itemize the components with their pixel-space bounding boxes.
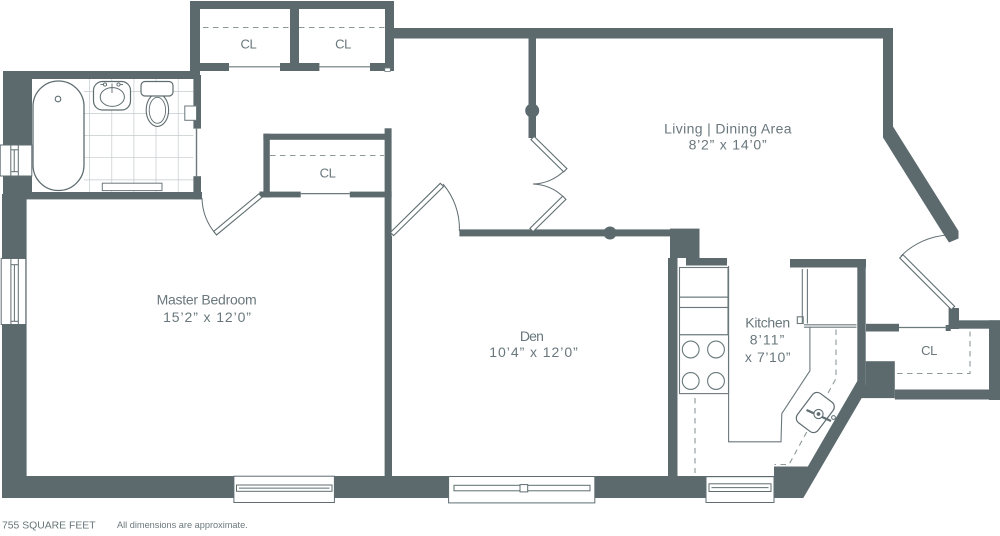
svg-text:8’11”: 8’11” <box>750 332 786 348</box>
svg-text:15’2” x 12’0”: 15’2” x 12’0” <box>163 309 252 325</box>
svg-text:All dimensions are approximate: All dimensions are approximate. <box>117 520 248 530</box>
svg-text:755 SQUARE FEET: 755 SQUARE FEET <box>2 521 96 532</box>
svg-text:CL: CL <box>240 37 256 52</box>
svg-text:Master Bedroom: Master Bedroom <box>157 291 257 307</box>
svg-text:CL: CL <box>320 166 336 181</box>
svg-text:8’2” x 14’0”: 8’2” x 14’0” <box>689 136 768 152</box>
svg-text:Den: Den <box>520 328 543 344</box>
svg-text:Living | Dining Area: Living | Dining Area <box>664 120 792 136</box>
svg-text:x 7’10”: x 7’10” <box>745 349 791 365</box>
svg-text:CL: CL <box>335 37 351 52</box>
svg-text:10’4” x 12’0”: 10’4” x 12’0” <box>489 344 578 360</box>
svg-text:Kitchen: Kitchen <box>745 315 790 331</box>
svg-text:CL: CL <box>921 343 937 358</box>
